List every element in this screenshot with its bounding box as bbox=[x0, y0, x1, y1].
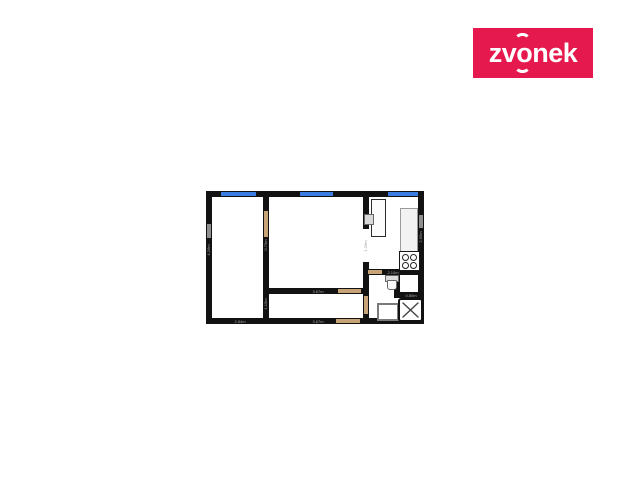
shower bbox=[398, 298, 423, 322]
door-entrance bbox=[336, 319, 360, 323]
dimension-label: 2.95m bbox=[418, 227, 424, 247]
dimension-label: 2.84m bbox=[228, 319, 252, 324]
bell-arc-top-icon bbox=[514, 33, 531, 41]
window-kitchen bbox=[388, 192, 418, 196]
page: 2.84m 4.26m 0.70m 3.67m 3.67m 1.15m 2.10… bbox=[0, 0, 640, 480]
burner-icon bbox=[410, 254, 417, 261]
window-bedroom bbox=[221, 192, 256, 196]
dimension-label: 0.80m bbox=[402, 293, 420, 298]
dimension-label: 2.10m bbox=[384, 270, 402, 275]
dimension-label: 4.26m bbox=[206, 240, 212, 260]
burner-icon bbox=[402, 262, 409, 269]
dimension-label: 1.26m bbox=[363, 236, 369, 256]
kitchen-counter bbox=[400, 208, 418, 253]
burner-icon bbox=[402, 254, 409, 261]
radiator-left bbox=[207, 224, 211, 238]
dimension-label: 3.67m bbox=[306, 289, 330, 294]
burner-icon bbox=[410, 262, 417, 269]
washing-machine bbox=[377, 303, 399, 321]
dimension-label: 1.15m bbox=[263, 294, 269, 314]
dimension-label: 3.67m bbox=[306, 319, 330, 324]
bell-arc-bottom-icon bbox=[514, 65, 531, 73]
wall-cabinet bbox=[364, 214, 374, 225]
window-living bbox=[300, 192, 333, 196]
door-kitchen bbox=[368, 270, 382, 274]
door-hall-east bbox=[364, 296, 368, 314]
stove bbox=[399, 251, 420, 271]
door-bedroom bbox=[264, 211, 268, 237]
toilet-bowl bbox=[387, 280, 397, 290]
brand-logo: zvonek bbox=[473, 28, 593, 78]
dimension-label: 0.70m bbox=[263, 235, 269, 255]
shower-x-icon bbox=[400, 300, 421, 320]
brand-name: zvonek bbox=[489, 40, 578, 67]
door-living bbox=[338, 289, 361, 293]
